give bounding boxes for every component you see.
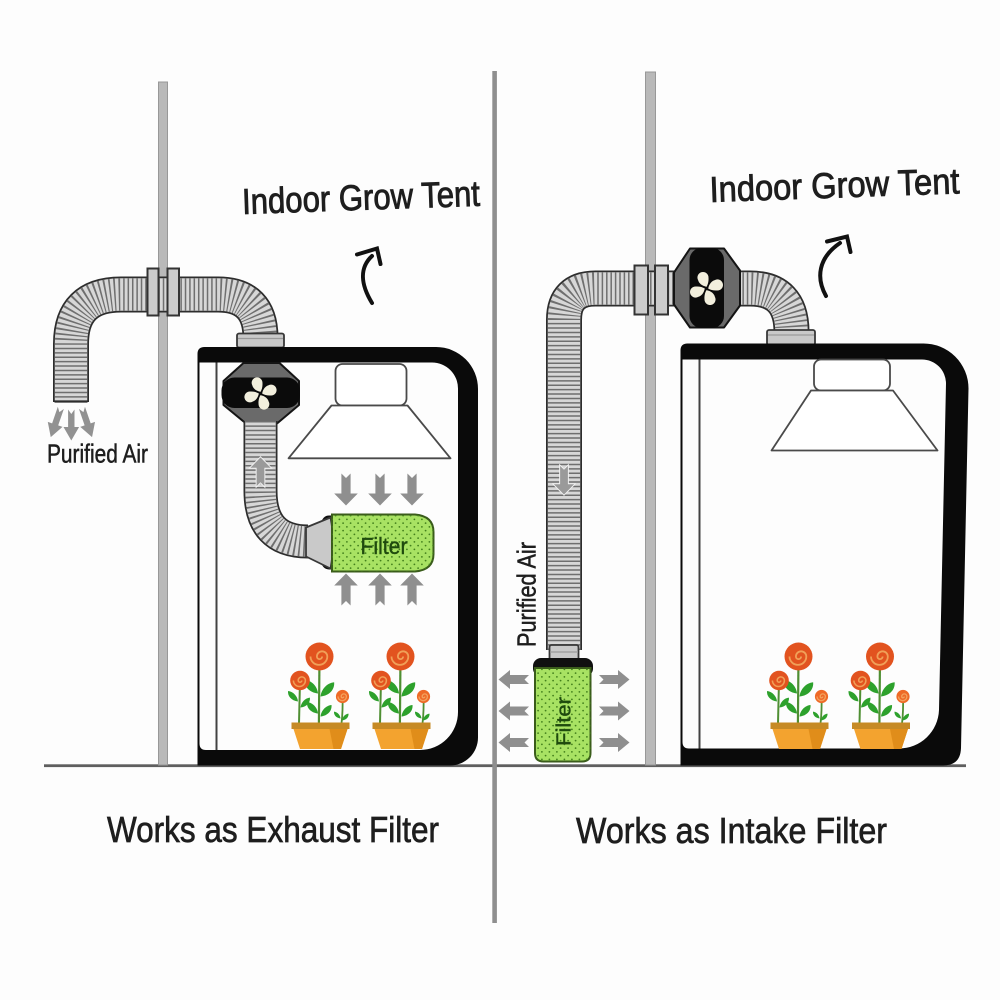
svg-text:Indoor Grow Tent: Indoor Grow Tent xyxy=(241,173,480,222)
svg-text:Filter: Filter xyxy=(554,697,576,746)
svg-text:Purified Air: Purified Air xyxy=(47,439,148,469)
svg-text:Indoor Grow Tent: Indoor Grow Tent xyxy=(709,160,960,210)
svg-text:Purified Air: Purified Air xyxy=(512,542,542,647)
svg-text:Works as Intake Filter: Works as Intake Filter xyxy=(576,810,887,851)
svg-text:Filter: Filter xyxy=(361,533,408,559)
svg-text:Works as Exhaust Filter: Works as Exhaust Filter xyxy=(107,809,439,850)
